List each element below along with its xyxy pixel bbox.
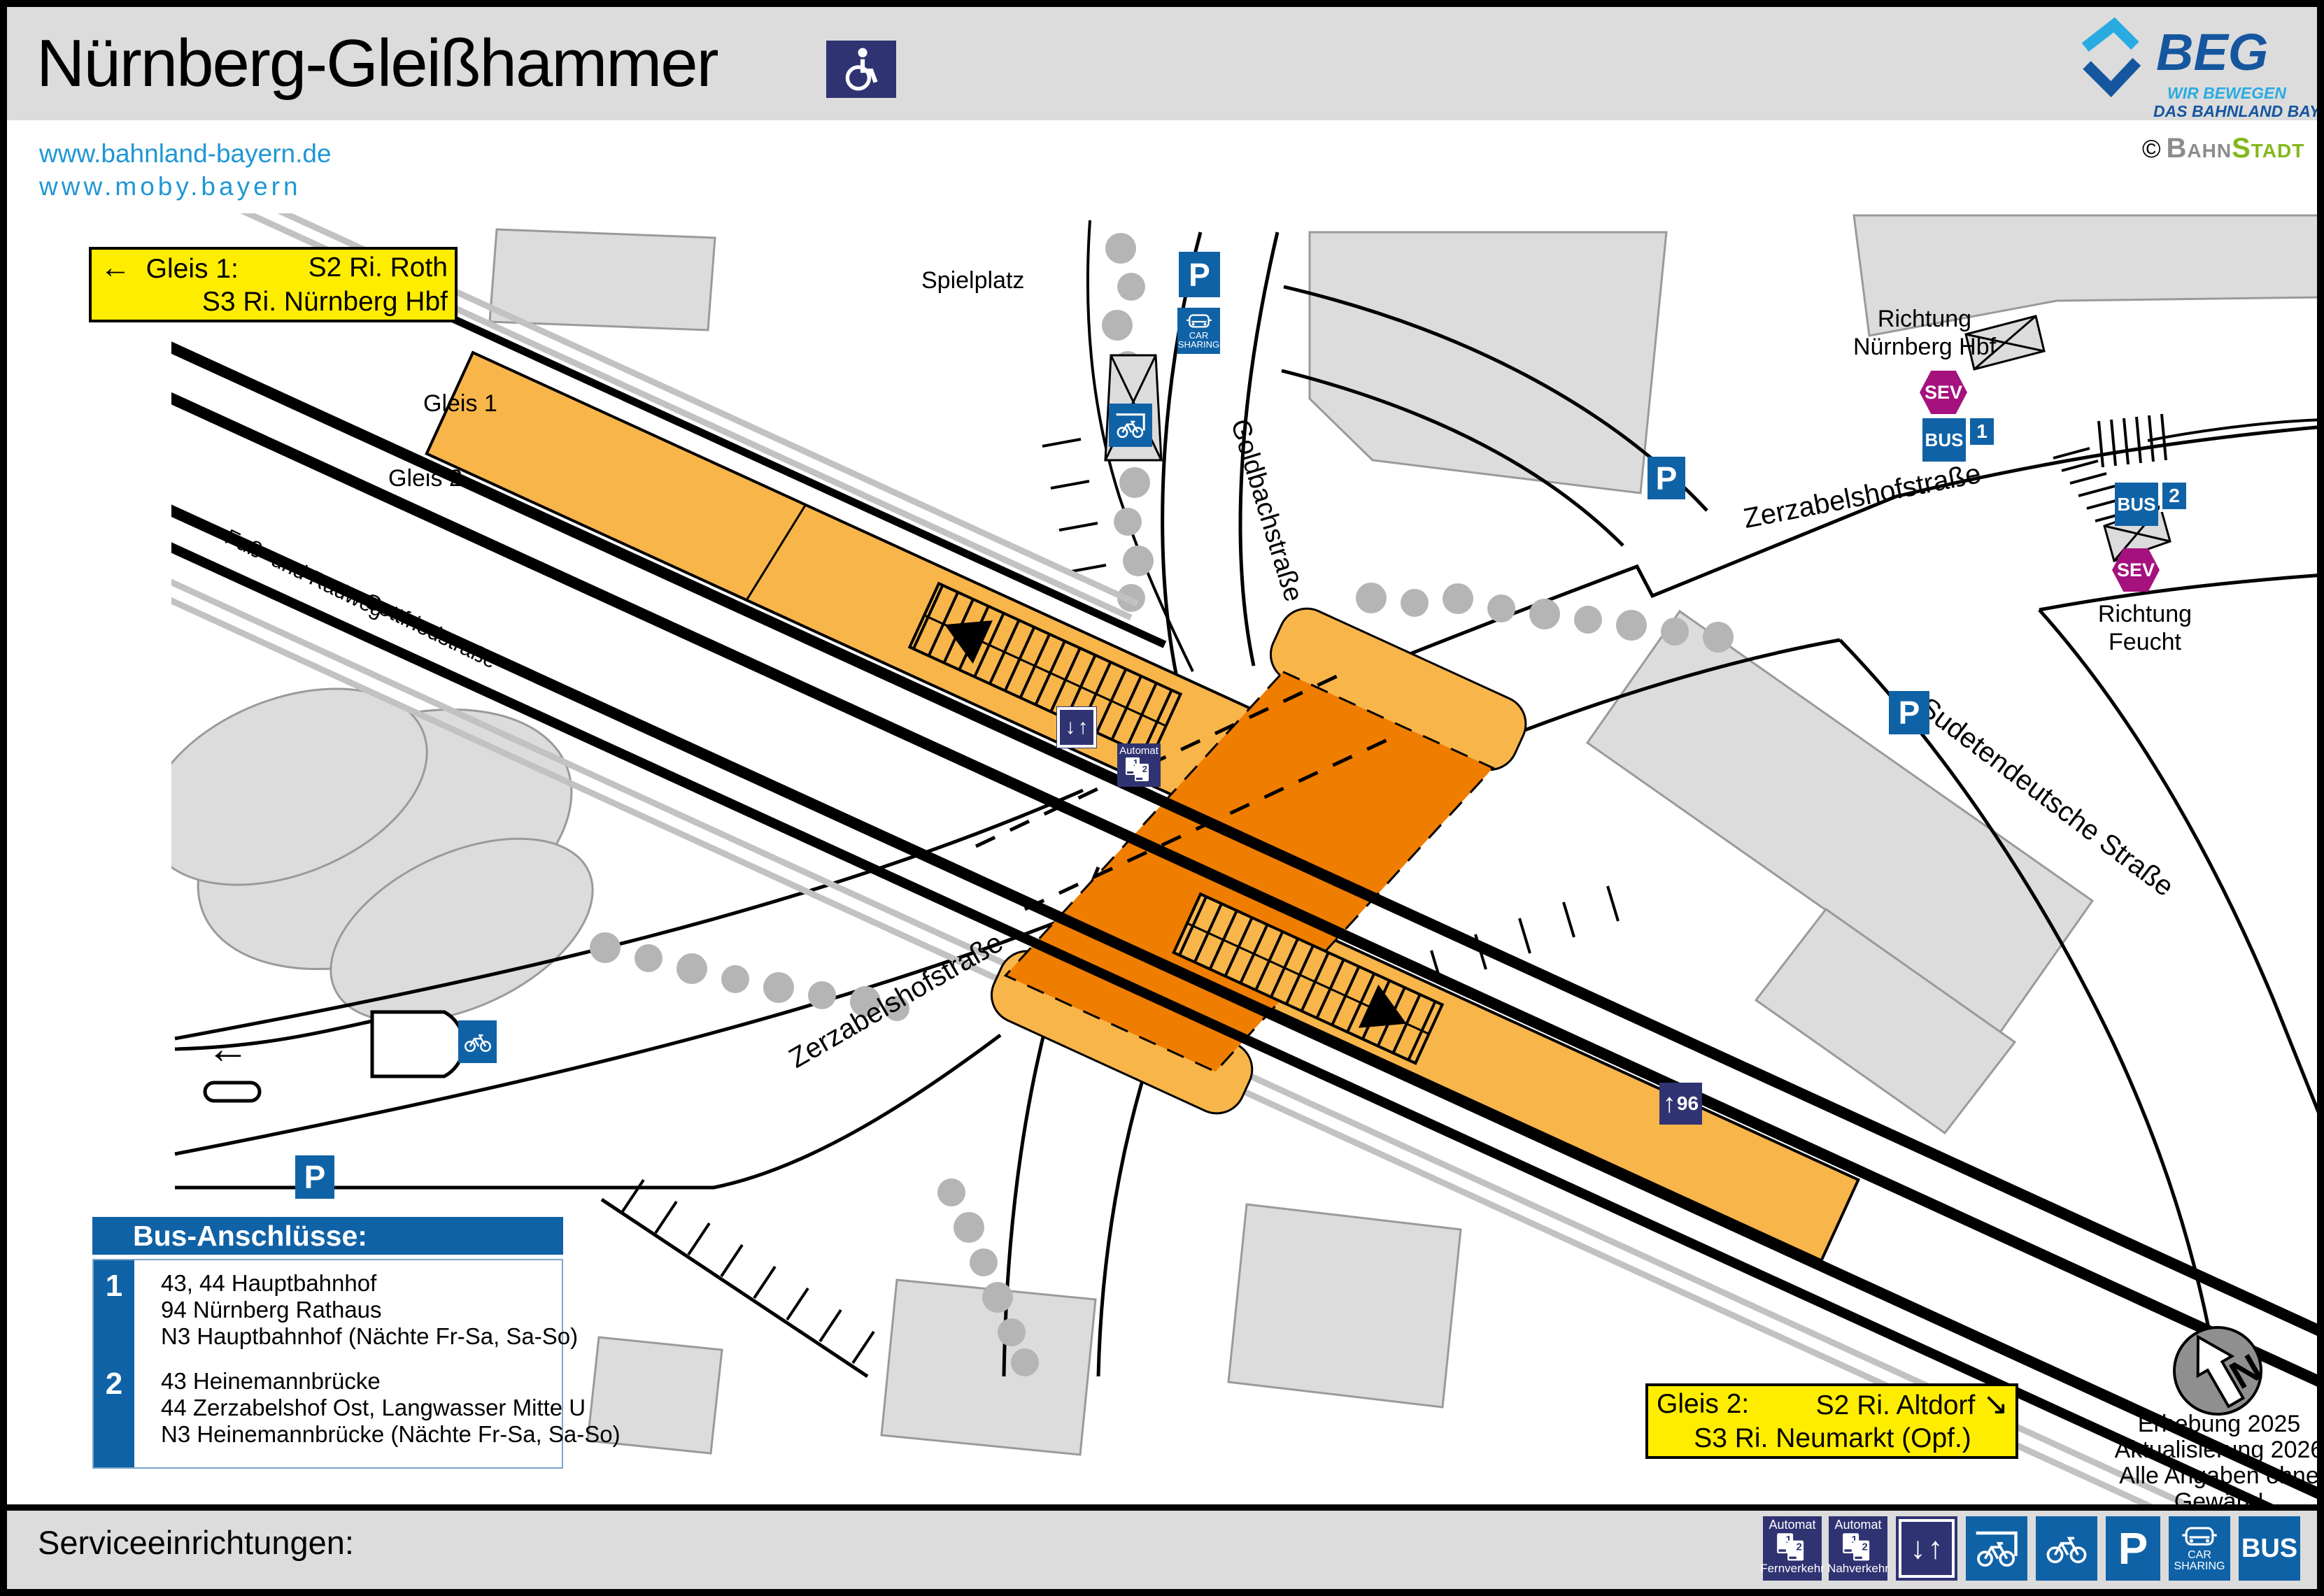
bus-stop1-badge: 1 <box>1967 415 1997 448</box>
platform-length-icon: ↑96 <box>1659 1083 1702 1125</box>
compass: N <box>2174 1318 2269 1414</box>
credit-part1: Bahn <box>2167 133 2232 164</box>
bus-stop-number-2: 2 <box>94 1367 134 1402</box>
car-sharing-icon: CARSHARING <box>1177 308 1220 354</box>
gleis1-dest2: S3 Ri. Nürnberg Hbf <box>202 285 448 318</box>
beg-tagline1: WIR BEWEGEN <box>2167 84 2286 103</box>
bike-parking-icon <box>458 1020 497 1063</box>
oneway-arrow-icon: ← <box>206 1035 250 1063</box>
bahnstadt-credit: ©BahnStadt <box>2142 133 2304 164</box>
gleis1-dest1: S2 Ri. Roth <box>309 251 448 285</box>
gleis2-dest2: S3 Ri. Neumarkt (Opf.) <box>1694 1422 1971 1455</box>
bus-connections-header: Bus-Anschlüsse: <box>92 1217 563 1255</box>
label-gleis1: Gleis 1 <box>423 390 497 418</box>
beg-diamond-icon <box>2071 17 2151 97</box>
website-links: www.bahnland-bayern.de www.moby.bayern <box>39 137 332 203</box>
parking-icon-west: P <box>295 1155 334 1199</box>
bus-connections-group2: 43 Heinemannbrücke 44 Zerzabelshof Ost, … <box>161 1368 621 1448</box>
park-area <box>118 650 621 1059</box>
bus-connections-box: 1 2 43, 44 Hauptbahnhof 94 Nürnberg Rath… <box>92 1259 563 1469</box>
services-label: Serviceeinrichtungen: <box>38 1523 354 1562</box>
bus-connections-stripe: 1 2 <box>94 1260 134 1467</box>
service-automat-nahverkehr-icon: Automat 1 2 Nahverkehr <box>1829 1516 1887 1581</box>
bus-connections-group1: 43, 44 Hauptbahnhof 94 Nürnberg Rathaus … <box>161 1270 578 1350</box>
wheelchair-accessible-icon <box>826 41 896 98</box>
bus-stop-number-1: 1 <box>94 1269 134 1304</box>
label-richtung-nuernberg-hbf: RichtungNürnberg Hbf <box>1853 305 1996 361</box>
gleis1-label: Gleis 1: <box>146 254 239 284</box>
gleis1-direction-box: ← Gleis 1: S2 Ri. Roth S3 Ri. Nürnberg H… <box>89 247 458 322</box>
service-bike-icon <box>2036 1516 2097 1581</box>
service-parking-icon: P <box>2106 1516 2160 1581</box>
link-moby-bayern[interactable]: www.moby.bayern <box>39 172 302 201</box>
label-richtung-feucht: RichtungFeucht <box>2098 600 2192 656</box>
service-automat-fernverkehr-icon: Automat 1 2 Fernverkehr <box>1763 1516 1822 1581</box>
covered-bike-parking-icon <box>1109 404 1152 447</box>
parking-icon-goldbach: P <box>1179 252 1220 297</box>
beg-logo: BEG WIR BEWEGEN DAS BAHNLAND BAYERN <box>2071 17 2323 122</box>
parking-icon-sudetendeutsche: P <box>1889 691 1929 734</box>
bus-stop2-badge: 2 <box>2160 480 2189 512</box>
gleis2-dest1: S2 Ri. Altdorf <box>1816 1390 1976 1420</box>
survey-note: Erhebung 2025 Aktualisierung 2026 Alle A… <box>2113 1411 2324 1515</box>
service-car-sharing-icon: CARSHARING <box>2169 1516 2230 1581</box>
beg-tagline2: DAS BAHNLAND BAYERN <box>2153 102 2324 121</box>
parking-icon-zerzabelshof: P <box>1648 457 1685 499</box>
arrow-left-icon: ← <box>100 250 131 285</box>
service-band: Serviceeinrichtungen: Automat 1 2 Fernve… <box>7 1504 2317 1589</box>
copyright-icon: © <box>2142 134 2161 163</box>
gleis2-direction-box: Gleis 2: S2 Ri. Altdorf ↘ S3 Ri. Neumark… <box>1645 1383 2018 1459</box>
service-bus-icon: BUS <box>2239 1516 2300 1581</box>
bus-icon-stop1: BUS <box>1922 418 1966 462</box>
label-spielplatz: Spielplatz <box>921 267 1024 294</box>
credit-part2: Stadt <box>2232 133 2304 164</box>
label-gleis2: Gleis 2 <box>388 465 462 492</box>
elevator-icon: ↓↑ <box>1056 706 1097 748</box>
service-covered-bike-icon <box>1966 1516 2027 1581</box>
beg-wordmark: BEG <box>2156 22 2268 82</box>
station-map-page: N Nürnberg-Gleißhammer www.bahnland-baye… <box>0 0 2324 1596</box>
page-title: Nürnberg-Gleißhammer <box>36 25 718 102</box>
gleis2-label: Gleis 2: <box>1657 1388 1749 1422</box>
arrow-downright-icon: ↘ <box>1983 1387 2008 1421</box>
link-bahnland-bayern[interactable]: www.bahnland-bayern.de <box>39 139 332 168</box>
ticket-machine-icon: Automat 1 2 <box>1117 743 1161 787</box>
bus-icon-stop2: BUS <box>2115 483 2158 526</box>
service-elevator-icon: ↓↑ <box>1896 1516 1957 1581</box>
